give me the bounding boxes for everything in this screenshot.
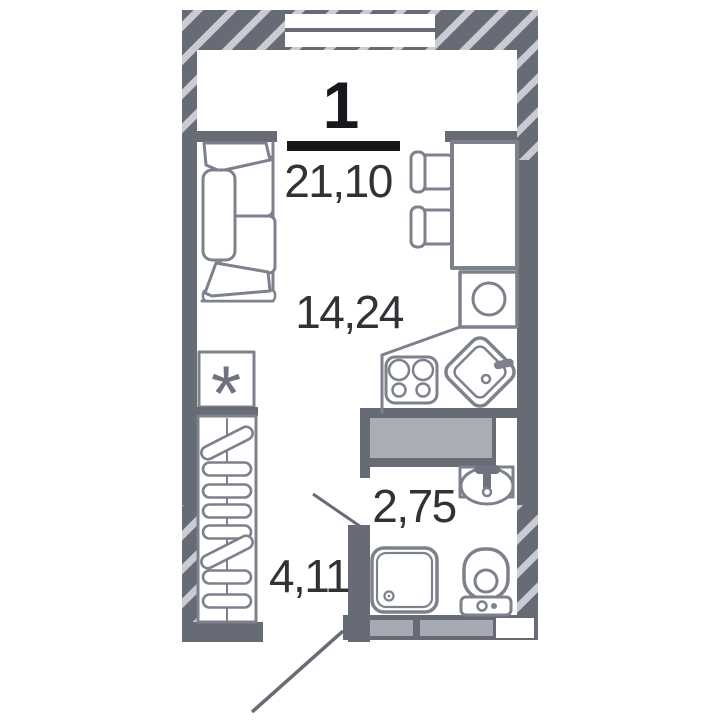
- dining-set: [411, 142, 517, 268]
- entrance-door-swing: [252, 631, 343, 712]
- hanger-icon: [203, 505, 251, 518]
- appliance-marker: *: [211, 349, 241, 437]
- window-frame-line: [285, 28, 435, 32]
- hallway-area-label: 4,11: [269, 550, 349, 602]
- bathroom-wall-left-lower: [348, 525, 370, 642]
- interior-stub-left: [197, 131, 277, 142]
- toilet-icon: [461, 549, 511, 615]
- window-icon: [285, 14, 435, 47]
- toilet-button: [491, 603, 497, 609]
- hanger-icon: [203, 571, 251, 584]
- ventilation-duct: [370, 418, 496, 467]
- washbasin-drain: [483, 488, 491, 496]
- bottom-wall-inset-2: [420, 620, 493, 636]
- living-area-label: 14,24: [295, 286, 404, 338]
- kitchen-sink-drain: [482, 375, 490, 383]
- left-wall-hatch-bottom: [182, 505, 197, 623]
- sofa-icon: [202, 142, 275, 301]
- rooms-count-label: 1: [323, 68, 360, 142]
- bottom-wall-left: [182, 622, 263, 642]
- hanger-icon: [203, 463, 251, 476]
- sofa-back-cushion: [203, 170, 235, 260]
- bathroom-partition-top: [360, 408, 538, 418]
- hanger-icon: [203, 595, 251, 608]
- bathroom-door-swing: [313, 494, 364, 529]
- bathroom-area-label: 2,75: [372, 480, 456, 532]
- bottom-wall-inset-1: [370, 620, 413, 636]
- kitchen-sink-outer: [442, 334, 518, 410]
- floor-plan-canvas: 1 21,10 14,24 2,75 4,11 *: [0, 0, 720, 720]
- bottom-wall-notch: [496, 618, 534, 638]
- left-wall-hatch-top: [182, 50, 197, 143]
- total-area-label: 21,10: [284, 155, 392, 207]
- washbasin-icon: [460, 465, 513, 504]
- bathroom-partition-left-upper: [360, 408, 370, 478]
- chair-backrest: [411, 152, 425, 192]
- duct-fill: [370, 418, 492, 458]
- hanger-icon: [203, 485, 251, 498]
- shower-icon: [372, 548, 437, 612]
- washing-machine-icon: [460, 272, 517, 327]
- shower-drain-dot: [388, 595, 391, 598]
- kitchen-sink-icon: [442, 334, 518, 410]
- chair-icon: [411, 152, 453, 192]
- chair-icon: [411, 207, 453, 247]
- right-wall-hatch-top: [517, 50, 538, 160]
- chair-backrest: [411, 207, 425, 247]
- stove-icon: [386, 357, 437, 403]
- floor-plan: 1 21,10 14,24 2,75 4,11 *: [0, 0, 720, 720]
- shower-tray: [372, 548, 437, 612]
- washing-machine-body: [460, 272, 517, 327]
- dining-table-icon: [452, 142, 517, 268]
- rooms-count-underline: [287, 141, 400, 151]
